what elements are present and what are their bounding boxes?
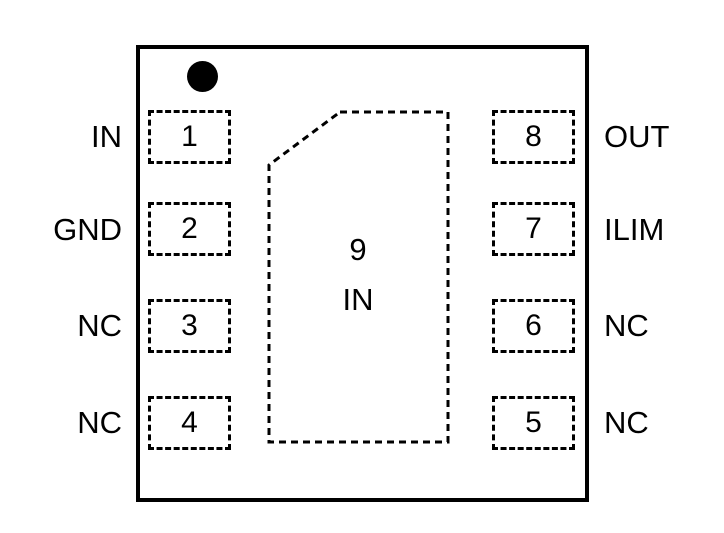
pin-3-label: NC (12, 308, 122, 344)
pin-2-box: 2 (148, 202, 231, 256)
pin-4-label: NC (12, 405, 122, 441)
pin-1-label: IN (12, 119, 122, 155)
pin-1-box: 1 (148, 110, 231, 164)
center-pad-name: IN (268, 282, 448, 318)
center-pad-number: 9 (268, 232, 448, 268)
pin-6-label: NC (604, 308, 714, 344)
pin-1-number: 1 (181, 122, 198, 152)
pin-2-label: GND (12, 212, 122, 248)
pin-8-box: 8 (492, 110, 575, 164)
pin-5-label: NC (604, 405, 714, 441)
center-pad-outline (267, 110, 451, 446)
pin-6-number: 6 (525, 311, 542, 341)
pin-7-label: ILIM (604, 212, 714, 248)
pin-5-number: 5 (525, 408, 542, 438)
pin-3-number: 3 (181, 311, 198, 341)
pin-8-number: 8 (525, 122, 542, 152)
pin1-indicator-dot-icon (187, 61, 218, 92)
pin-4-number: 4 (181, 408, 198, 438)
pin-5-box: 5 (492, 396, 575, 450)
pin-4-box: 4 (148, 396, 231, 450)
ic-pinout-diagram: 9 IN 1 2 3 4 8 7 6 5 IN GND NC NC OUT IL… (0, 0, 724, 533)
pin-7-box: 7 (492, 202, 575, 256)
pin-7-number: 7 (525, 214, 542, 244)
pin-8-label: OUT (604, 119, 714, 155)
pin-2-number: 2 (181, 214, 198, 244)
pin-6-box: 6 (492, 299, 575, 353)
pin-3-box: 3 (148, 299, 231, 353)
